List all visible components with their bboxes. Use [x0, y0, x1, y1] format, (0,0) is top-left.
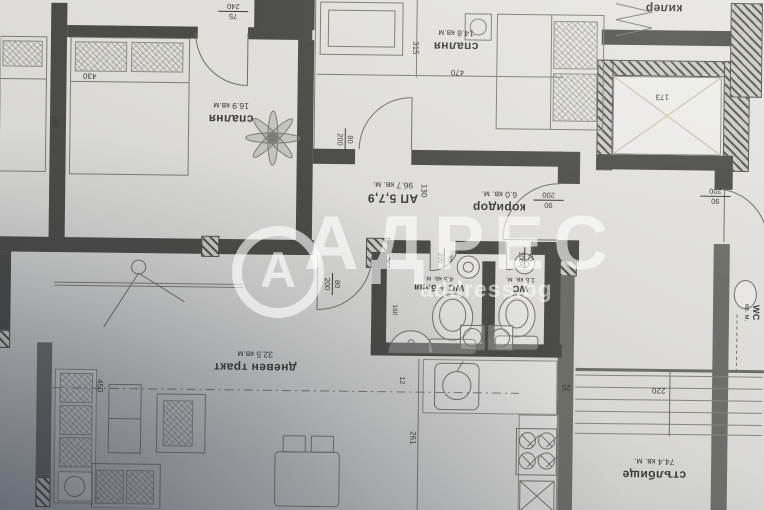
- dim-430: 430: [73, 71, 107, 80]
- room-area: 1.8 кв. м.: [494, 273, 546, 282]
- room-area: кв. м.: [741, 293, 750, 333]
- door-size-70-200-bath: 70 200: [437, 248, 452, 268]
- floorplan-photo: спалня 16.9 кв.м спалня 14.8 кв.м килер …: [0, 0, 764, 510]
- dim-25: 25: [555, 383, 577, 392]
- room-label-bath: WC + баня 4.3 кв. м.: [398, 272, 481, 293]
- room-area: 4.3 кв. м.: [398, 272, 481, 282]
- dining-chair-1: [283, 436, 305, 452]
- door-width: 75: [218, 12, 248, 20]
- dim-160: 160: [391, 295, 398, 325]
- door-height: 200: [517, 247, 526, 267]
- sofa-outline: [91, 464, 160, 509]
- door-width: 80: [333, 273, 341, 295]
- bed2-blanket-line: [550, 15, 551, 130]
- dining-table: [274, 452, 339, 507]
- elevator-cross-icon: [612, 76, 721, 156]
- neighbor-bed-line: [0, 78, 46, 79]
- door-width: 90: [700, 197, 730, 205]
- dresser-inner: [328, 10, 395, 47]
- neighbor-bed-outline: [0, 36, 47, 171]
- plan-linework: [0, 0, 764, 510]
- dining-chair-2: [311, 436, 333, 452]
- bed1-blanket-line: [71, 81, 190, 82]
- side-table-rosette: [64, 476, 84, 496]
- room-name: WC + баня: [398, 281, 481, 293]
- balcony-door-lines: [104, 273, 185, 328]
- door-size-80-200-b: 80 200: [324, 273, 341, 295]
- room-name: спалня: [171, 110, 292, 127]
- door-width: 70: [445, 248, 452, 268]
- dim-395: 395: [50, 105, 59, 139]
- dim-470: 470: [440, 68, 474, 77]
- dim-173: 173: [645, 92, 679, 101]
- dim-12: 12: [398, 369, 405, 391]
- terrace-railing: [54, 282, 243, 287]
- door-swing-bedroom1: [195, 33, 248, 86]
- balcony-door-pivot: [132, 260, 146, 274]
- room-label-bedroom1: спалня 16.9 кв.м: [171, 100, 292, 127]
- bed2-outline: [496, 14, 604, 130]
- door-size-90-200-neighbor: 90 200: [700, 188, 730, 205]
- dim-261: 261: [408, 421, 417, 455]
- dim-450: 450: [95, 371, 104, 401]
- shower-tray: [389, 330, 433, 353]
- room-label-neighbor-wc: WC кв. м.: [741, 293, 762, 333]
- armchair-outline: [156, 394, 205, 453]
- door-width: 90: [533, 201, 563, 209]
- room-area: 16.9 кв.м: [171, 100, 292, 112]
- floorplan-drawing: спалня 16.9 кв.м спалня 14.8 кв.м килер …: [0, 0, 764, 510]
- dim-220: 220: [642, 386, 676, 395]
- door-width: 80: [346, 128, 354, 150]
- dim-315: 315: [411, 31, 420, 65]
- door-size-70-200-wc: 70 200: [517, 247, 532, 267]
- kitchen-sink-basin: [434, 363, 479, 410]
- section-line: [53, 388, 519, 394]
- kitchen-sink-bowl: [443, 371, 471, 399]
- room-name: WC: [494, 282, 546, 294]
- line-bedroom2-west: [314, 0, 316, 149]
- dim-130: 130: [419, 174, 428, 208]
- neighbor-pipe: [736, 315, 737, 373]
- stair-treads: [575, 369, 763, 438]
- room-name: WC: [750, 293, 762, 333]
- room-label-closet: килер 2.8 кв.м: [616, 0, 712, 16]
- room-area: 32.5 кв.м: [180, 348, 331, 361]
- room-label-living: дневен тракт 32.5 кв.м: [180, 348, 331, 376]
- door-size-80-200-a: 80 200: [337, 128, 354, 150]
- door-swing-bedroom2: [359, 97, 412, 150]
- room-area: 74.4 кв. м.: [597, 456, 713, 468]
- room-label-staircase: стълбище 74.4 кв. м.: [596, 456, 712, 483]
- fridge-cross: [520, 481, 555, 510]
- room-name: килер: [616, 0, 712, 16]
- room-name: дневен тракт: [180, 359, 331, 376]
- stove-burners: [519, 433, 559, 470]
- room-name: стълбище: [596, 466, 712, 482]
- door-size-75-240: 75 240: [218, 3, 248, 20]
- door-height: 200: [437, 248, 446, 268]
- door-width: 70: [526, 247, 533, 267]
- room-label-wc: WC 1.8 кв. м.: [494, 273, 547, 294]
- door-size-90-200-entry: 90 200: [533, 192, 563, 209]
